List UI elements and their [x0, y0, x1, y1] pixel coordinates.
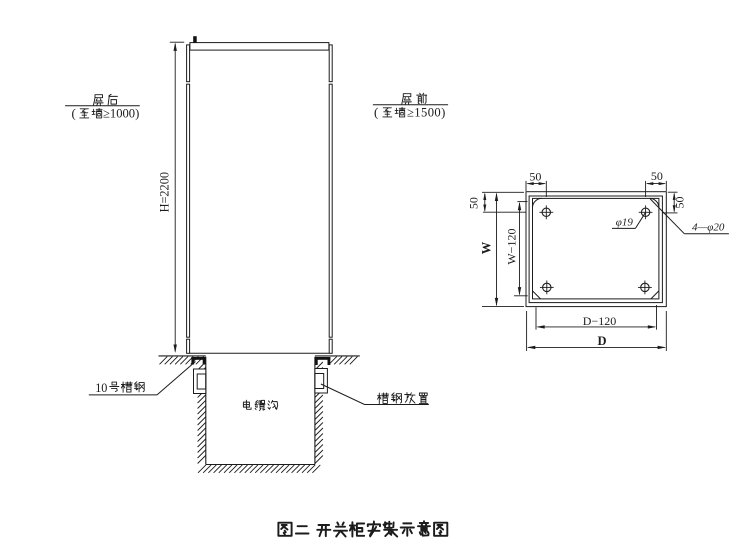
svg-text:≥1500): ≥1500) [407, 106, 446, 120]
svg-text:φ19: φ19 [616, 217, 634, 229]
svg-text:(: ( [374, 105, 378, 120]
svg-text:50: 50 [651, 169, 663, 183]
svg-text:D: D [597, 334, 606, 348]
svg-text:W−120: W−120 [505, 229, 519, 265]
svg-text:4—φ20: 4—φ20 [692, 221, 725, 233]
svg-text:50: 50 [467, 197, 481, 209]
svg-text:W: W [479, 241, 493, 254]
svg-text:10: 10 [95, 381, 107, 395]
svg-text:50: 50 [673, 197, 687, 209]
svg-text:≥1000): ≥1000) [103, 107, 139, 121]
svg-text:H=2200: H=2200 [157, 172, 171, 212]
svg-text:D−120: D−120 [583, 314, 616, 328]
svg-text:50: 50 [529, 170, 541, 184]
svg-text:(: ( [72, 106, 76, 121]
